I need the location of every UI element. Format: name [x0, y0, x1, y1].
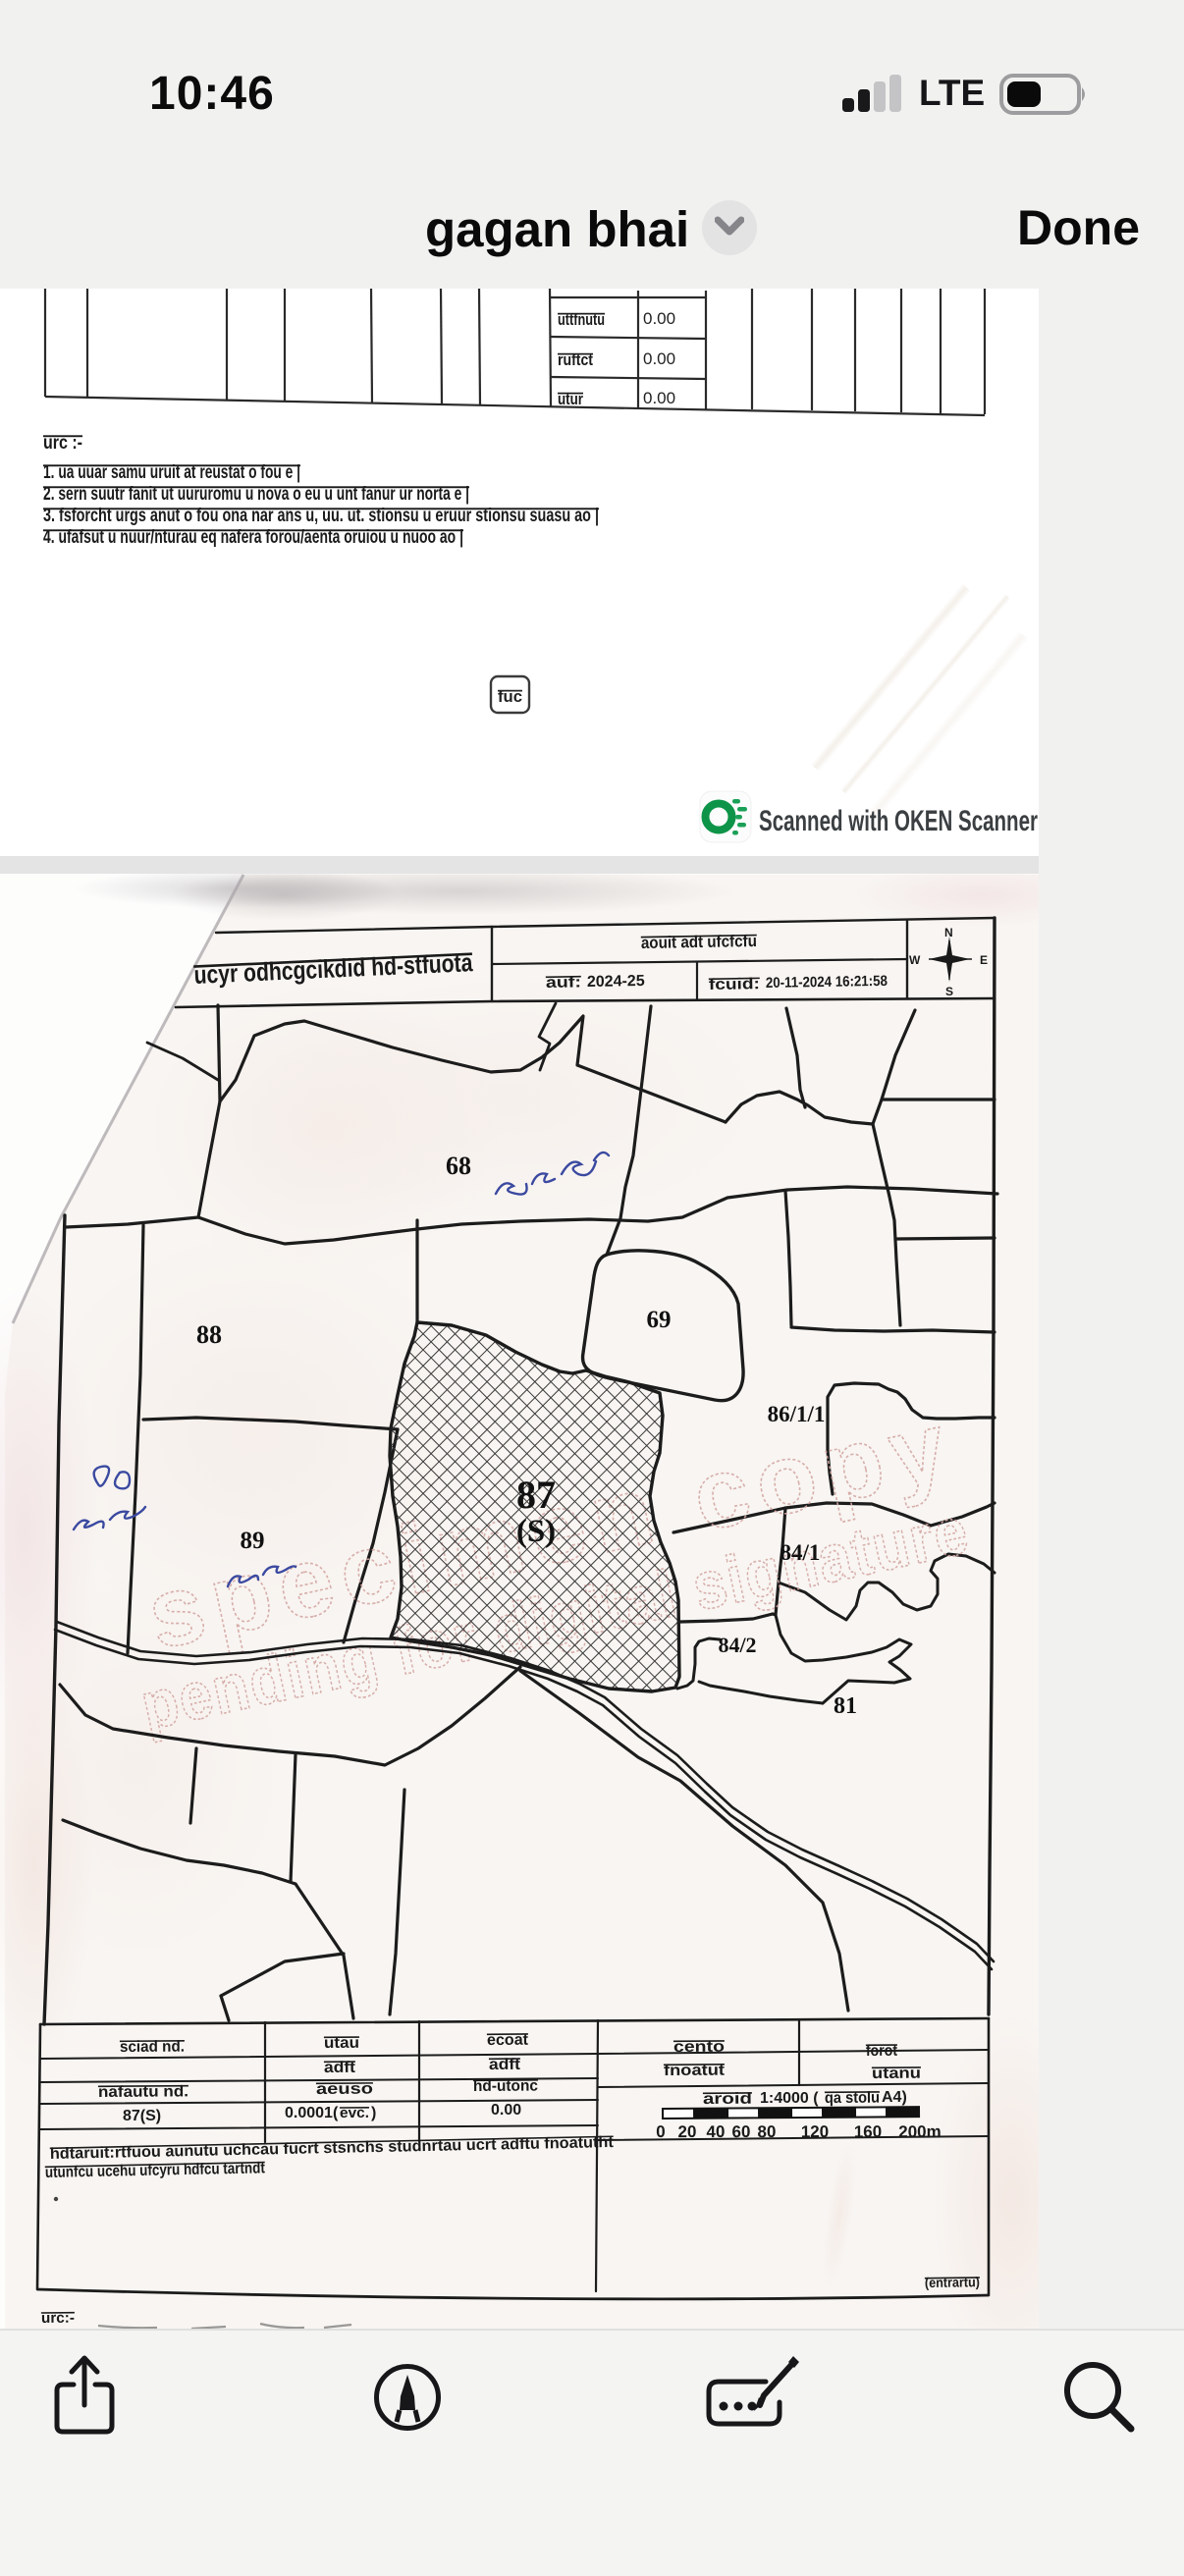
svg-text:120: 120 — [801, 2122, 830, 2141]
svg-text:0.00: 0.00 — [643, 389, 675, 407]
svg-text:87: 87 — [516, 1473, 556, 1517]
svg-text:68: 68 — [446, 1152, 471, 1180]
svg-text:E: E — [980, 953, 988, 967]
svg-text:A4): A4) — [882, 2089, 907, 2106]
svg-text:88: 88 — [196, 1320, 222, 1349]
svg-text:20-11-2024 16:21:58: 20-11-2024 16:21:58 — [766, 973, 888, 992]
svg-text:0.00: 0.00 — [491, 2102, 521, 2119]
svg-text:0.0001(: 0.0001( — [285, 2105, 339, 2121]
svg-text:200m: 200m — [898, 2122, 942, 2141]
svg-text:80: 80 — [757, 2122, 776, 2141]
svg-text:0: 0 — [656, 2122, 666, 2141]
svg-text:(entrartu): (entrartu) — [925, 2274, 980, 2290]
svg-text:): ) — [371, 2105, 376, 2121]
svg-text:84/2: 84/2 — [718, 1633, 756, 1657]
svg-text:N: N — [944, 926, 953, 939]
svg-text:20: 20 — [677, 2122, 696, 2141]
svg-text:(S): (S) — [516, 1514, 556, 1549]
svg-text:160: 160 — [854, 2122, 883, 2141]
svg-text:81: 81 — [834, 1693, 857, 1719]
svg-text:86/1/1: 86/1/1 — [768, 1402, 826, 1426]
svg-text:84/1: 84/1 — [780, 1540, 821, 1565]
svg-text:0.00: 0.00 — [643, 309, 675, 328]
svg-text:87(S): 87(S) — [123, 2108, 161, 2124]
svg-text:69: 69 — [647, 1307, 672, 1333]
svg-text:S: S — [945, 985, 953, 998]
svg-text:89: 89 — [241, 1528, 265, 1554]
svg-text:W: W — [909, 953, 921, 967]
svg-text:40: 40 — [706, 2122, 725, 2141]
svg-text:Scanned with OKEN Scanner: Scanned with OKEN Scanner — [759, 805, 1038, 837]
svg-text:60: 60 — [731, 2122, 750, 2141]
svg-text:1:4000 (: 1:4000 ( — [760, 2090, 819, 2107]
svg-text:2024-25: 2024-25 — [587, 973, 645, 991]
svg-text:0.00: 0.00 — [643, 349, 675, 368]
